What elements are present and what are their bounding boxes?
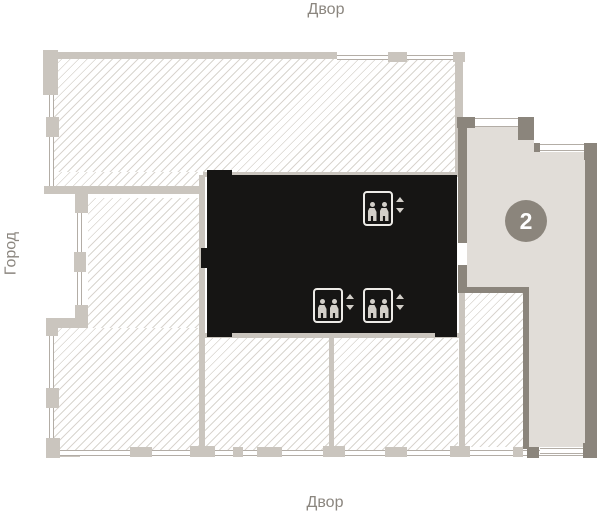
window-top-1 xyxy=(337,55,388,60)
pier-bottom-3 xyxy=(233,447,243,457)
unit-2-floor-column[interactable] xyxy=(529,287,585,447)
wall-unit2-corner-bottom-right xyxy=(583,443,597,458)
person-icon xyxy=(368,202,377,221)
unit-2-number: 2 xyxy=(520,208,533,235)
room-bottom-middle-2 xyxy=(334,338,458,450)
window-unit2-bottom xyxy=(540,448,583,454)
wall-interior-vertical-left xyxy=(199,175,205,455)
wall-unit2-horiz xyxy=(458,287,529,293)
pier-notch xyxy=(74,252,86,272)
pier-bottom-1 xyxy=(130,447,152,457)
window-notch-1 xyxy=(77,213,82,252)
person-icon xyxy=(380,299,389,318)
room-left-lower xyxy=(54,328,199,450)
pier-bottom-4 xyxy=(257,447,282,457)
room-top xyxy=(54,59,455,172)
core-bump-bottom-right xyxy=(435,333,457,337)
arrow-up-icon xyxy=(346,294,354,299)
pier-bottom-6 xyxy=(385,447,407,457)
wall-unit2-bottom-block xyxy=(527,447,539,458)
core-bump-left xyxy=(201,248,207,268)
pier-bottom-8 xyxy=(513,447,523,457)
room-bottom-right xyxy=(465,293,523,447)
room-left-upper xyxy=(88,198,199,328)
window-unit2-top-2 xyxy=(540,144,584,151)
wall-top xyxy=(43,52,337,59)
unit-2-badge[interactable]: 2 xyxy=(505,200,547,242)
window-notch-2 xyxy=(77,272,82,308)
arrow-down-icon xyxy=(346,305,354,310)
wall-interior-vertical-right xyxy=(459,293,465,450)
wall-unit2-left-upper xyxy=(458,128,467,243)
arrow-up-icon xyxy=(396,197,404,202)
pier-left-1 xyxy=(46,117,59,137)
wall-unit2-corner-step xyxy=(518,117,534,140)
wall-notch-top xyxy=(44,186,203,194)
elevator-icon xyxy=(363,191,393,226)
pier-left-2 xyxy=(46,388,59,408)
person-icon xyxy=(368,299,377,318)
label-city-left: Город xyxy=(3,224,20,284)
person-icon xyxy=(330,299,339,318)
person-icon xyxy=(318,299,327,318)
door-gap-unit2 xyxy=(457,243,467,265)
pier-top-1 xyxy=(388,52,407,62)
window-left-3 xyxy=(49,336,54,388)
wall-unit2-column-left xyxy=(523,293,529,449)
elevator-icon xyxy=(313,288,343,323)
wall-unit2-top-left xyxy=(457,117,475,128)
room-bottom-middle-1 xyxy=(205,338,329,450)
arrow-up-icon xyxy=(396,294,404,299)
person-icon xyxy=(380,202,389,221)
wall-corner-top-left xyxy=(43,50,58,95)
wall-notch-step xyxy=(75,192,88,213)
label-courtyard-bottom: Двор xyxy=(295,494,355,511)
window-top-2 xyxy=(407,55,453,60)
wall-interior-vertical-middle xyxy=(329,334,334,452)
core-bump-top-left xyxy=(207,170,232,176)
label-courtyard-top: Двор xyxy=(296,1,356,18)
window-unit2-top-1 xyxy=(475,118,518,127)
wall-corner-notch xyxy=(46,318,58,336)
floor-plan: 2 Двор Двор Город xyxy=(0,0,600,515)
core-bump-bottom-left xyxy=(207,333,232,337)
room-top-left-extension xyxy=(54,172,199,187)
window-left-2 xyxy=(49,137,54,188)
window-left-1 xyxy=(49,95,54,117)
elevator-icon xyxy=(363,288,393,323)
pier-bottom-5 xyxy=(323,446,345,457)
wall-unit2-right xyxy=(585,152,597,449)
arrow-down-icon xyxy=(396,208,404,213)
arrow-down-icon xyxy=(396,305,404,310)
